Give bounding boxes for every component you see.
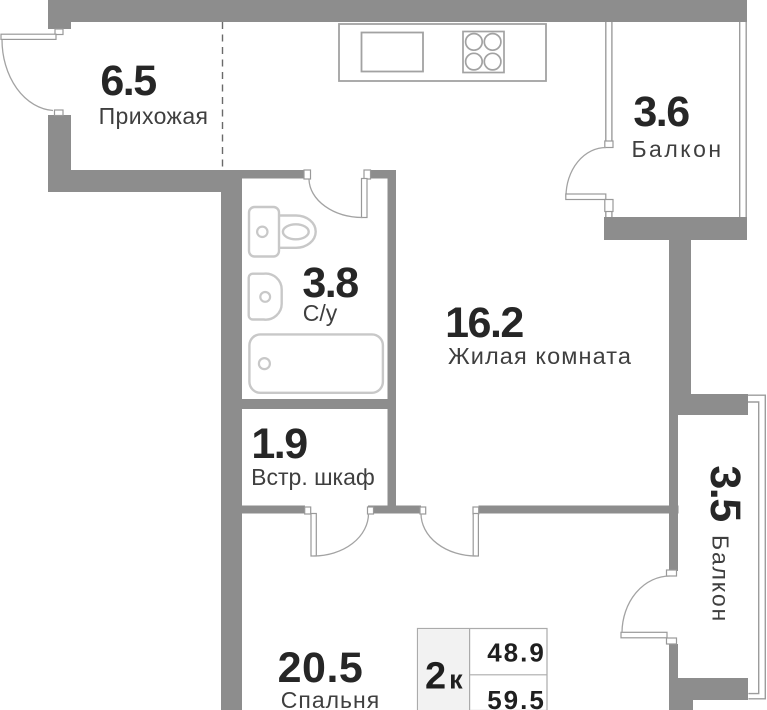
svg-text:59.5: 59.5 xyxy=(487,685,546,710)
svg-text:Балкон: Балкон xyxy=(631,136,723,162)
svg-text:3.6: 3.6 xyxy=(633,88,689,136)
svg-text:Встр. шкаф: Встр. шкаф xyxy=(251,464,375,490)
svg-text:6.5: 6.5 xyxy=(100,57,156,105)
svg-text:С/у: С/у xyxy=(303,300,338,326)
svg-text:Жилая комната: Жилая комната xyxy=(448,343,632,369)
svg-text:Прихожая: Прихожая xyxy=(99,103,209,129)
svg-text:Спальня: Спальня xyxy=(281,687,380,710)
svg-text:48.9: 48.9 xyxy=(487,638,546,668)
svg-text:Балкон: Балкон xyxy=(708,535,734,623)
svg-text:1.9: 1.9 xyxy=(251,420,307,468)
svg-text:3.5: 3.5 xyxy=(701,465,749,521)
svg-text:20.5: 20.5 xyxy=(278,644,364,692)
svg-text:16.2: 16.2 xyxy=(445,299,523,347)
